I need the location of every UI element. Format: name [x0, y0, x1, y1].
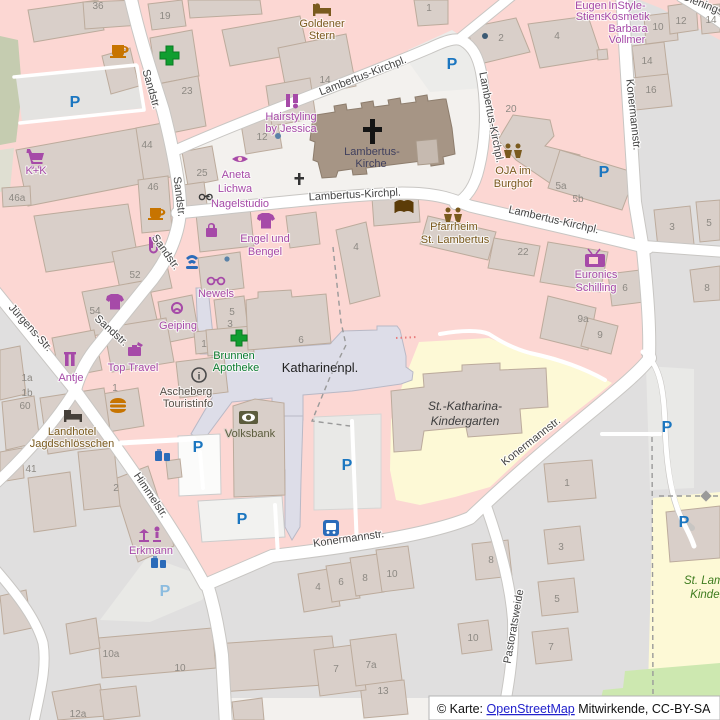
svg-text:9: 9	[597, 330, 603, 341]
svg-text:2: 2	[498, 33, 504, 44]
svg-text:2: 2	[113, 483, 119, 494]
svg-text:Touristinfo: Touristinfo	[163, 398, 213, 410]
svg-text:Schilling: Schilling	[576, 282, 617, 294]
svg-text:4: 4	[353, 242, 359, 253]
svg-text:41: 41	[25, 464, 37, 475]
svg-text:4: 4	[554, 31, 560, 42]
svg-text:St.-Katharina-: St.-Katharina-	[428, 399, 502, 413]
svg-text:23: 23	[181, 86, 193, 97]
svg-text:P: P	[679, 514, 690, 531]
svg-text:7: 7	[333, 664, 339, 675]
svg-text:10: 10	[386, 569, 398, 580]
svg-text:1: 1	[201, 339, 207, 350]
svg-text:46: 46	[147, 182, 159, 193]
svg-text:Euronics: Euronics	[575, 269, 618, 281]
svg-text:Kirche: Kirche	[355, 158, 386, 170]
svg-text:P: P	[599, 164, 610, 181]
svg-text:Geiping: Geiping	[159, 320, 197, 332]
svg-text:P: P	[160, 583, 171, 600]
svg-text:Kosmetik: Kosmetik	[604, 11, 650, 23]
svg-text:by Jessica: by Jessica	[265, 123, 317, 135]
svg-text:Brunnen: Brunnen	[213, 350, 255, 362]
svg-text:3: 3	[227, 319, 233, 330]
svg-text:P: P	[447, 56, 458, 73]
svg-text:25: 25	[196, 168, 208, 179]
svg-text:1a: 1a	[21, 373, 33, 384]
svg-text:10: 10	[467, 633, 479, 644]
svg-text:Katharinenpl.: Katharinenpl.	[282, 360, 359, 375]
svg-text:1: 1	[112, 383, 118, 394]
svg-text:12: 12	[256, 132, 268, 143]
svg-text:5a: 5a	[555, 181, 567, 192]
svg-text:Landhotel: Landhotel	[48, 426, 96, 438]
svg-text:Stiens: Stiens	[576, 11, 607, 23]
svg-text:Burghof: Burghof	[494, 178, 533, 190]
svg-text:Aneta: Aneta	[222, 169, 252, 181]
svg-text:Nagelstudio: Nagelstudio	[211, 198, 269, 210]
svg-text:5: 5	[229, 307, 235, 318]
svg-text:20: 20	[505, 104, 517, 115]
svg-text:Antje: Antje	[58, 372, 83, 384]
svg-text:Apotheke: Apotheke	[213, 362, 259, 374]
svg-text:13: 13	[377, 686, 389, 697]
svg-text:1: 1	[564, 478, 570, 489]
svg-text:P: P	[193, 439, 204, 456]
svg-text:Engel und: Engel und	[240, 233, 290, 245]
svg-text:12: 12	[675, 16, 687, 27]
svg-text:9a: 9a	[577, 314, 589, 325]
svg-text:7: 7	[548, 642, 554, 653]
svg-text:St. Lambertus: St. Lambertus	[421, 234, 490, 246]
svg-text:Kinderg: Kinderg	[690, 589, 720, 601]
svg-text:K+K: K+K	[25, 165, 47, 177]
svg-text:P: P	[237, 511, 248, 528]
svg-text:10: 10	[652, 22, 664, 33]
svg-text:19: 19	[159, 11, 171, 22]
svg-text:8: 8	[362, 573, 368, 584]
svg-text:14: 14	[705, 15, 717, 26]
svg-text:Stern: Stern	[309, 30, 335, 42]
svg-text:7a: 7a	[365, 660, 377, 671]
svg-text:8: 8	[704, 283, 710, 294]
svg-text:10: 10	[174, 663, 186, 674]
svg-text:P: P	[70, 94, 81, 111]
svg-text:5: 5	[554, 594, 560, 605]
svg-text:46a: 46a	[9, 193, 26, 204]
svg-text:P: P	[662, 419, 673, 436]
svg-text:Erkmann: Erkmann	[129, 545, 173, 557]
svg-text:Volksbank: Volksbank	[225, 428, 276, 440]
svg-text:Lambertus-: Lambertus-	[344, 146, 400, 158]
svg-text:14: 14	[641, 56, 653, 67]
svg-text:St. Lamb: St. Lamb	[684, 575, 720, 587]
svg-text:12a: 12a	[70, 709, 87, 720]
svg-text:5: 5	[706, 218, 712, 229]
svg-text:3: 3	[669, 222, 675, 233]
svg-text:Top Travel: Top Travel	[108, 362, 159, 374]
svg-text:22: 22	[517, 247, 529, 258]
svg-text:Jagdschlösschen: Jagdschlösschen	[30, 438, 114, 450]
svg-text:1: 1	[426, 3, 432, 14]
svg-text:8: 8	[488, 555, 494, 566]
svg-text:Hairstyling: Hairstyling	[265, 111, 316, 123]
svg-text:© Karte: OpenStreetMap Mitwirk: © Karte: OpenStreetMap Mitwirkende, CC-B…	[437, 702, 711, 716]
svg-text:36: 36	[92, 1, 104, 12]
svg-text:6: 6	[338, 577, 344, 588]
svg-text:10a: 10a	[103, 649, 120, 660]
svg-text:Lichwa: Lichwa	[218, 183, 253, 195]
svg-text:1b: 1b	[21, 388, 33, 399]
svg-text:Newels: Newels	[198, 288, 235, 300]
svg-text:4: 4	[315, 582, 321, 593]
svg-text:60: 60	[19, 401, 31, 412]
svg-text:3: 3	[558, 542, 564, 553]
svg-text:5b: 5b	[572, 194, 584, 205]
svg-text:Ascheberg: Ascheberg	[160, 386, 213, 398]
svg-text:Pfarrheim: Pfarrheim	[430, 221, 478, 233]
svg-text:54: 54	[89, 306, 101, 317]
svg-text:16: 16	[645, 85, 657, 96]
svg-text:44: 44	[141, 140, 153, 151]
svg-text:Vollmer: Vollmer	[609, 34, 646, 46]
svg-text:6: 6	[622, 283, 628, 294]
svg-text:52: 52	[129, 270, 141, 281]
svg-text:14: 14	[319, 75, 331, 86]
svg-text:6: 6	[298, 335, 304, 346]
svg-text:Bengel: Bengel	[248, 246, 282, 258]
svg-text:Kindergarten: Kindergarten	[431, 414, 500, 428]
svg-text:i: i	[198, 372, 201, 383]
svg-text:P: P	[342, 457, 353, 474]
svg-text:Goldener: Goldener	[299, 18, 345, 30]
svg-text:OJA im: OJA im	[495, 165, 530, 177]
